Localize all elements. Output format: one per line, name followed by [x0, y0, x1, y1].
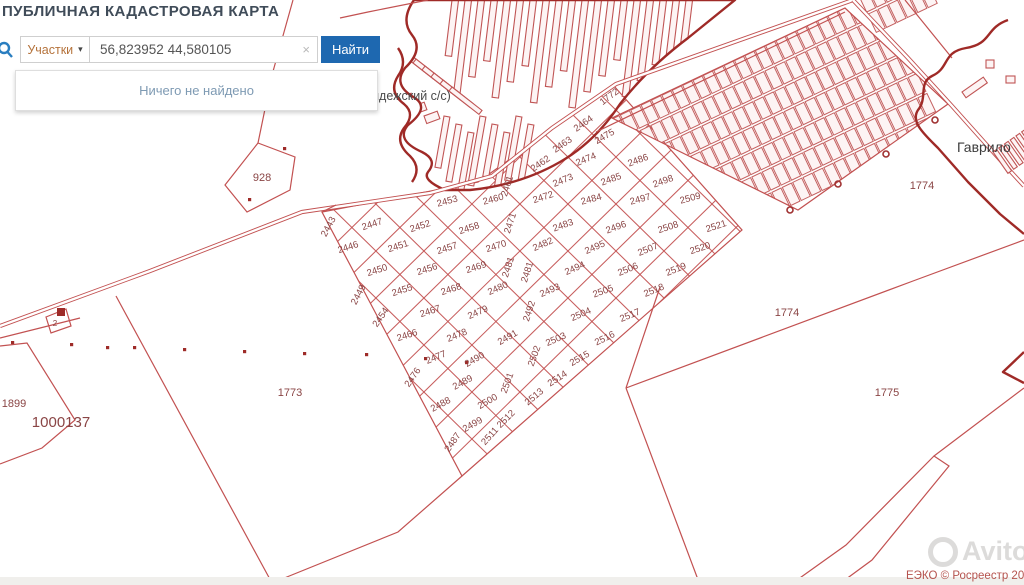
clear-icon[interactable]: ×	[302, 42, 310, 57]
parcel-number-label: 2479	[466, 303, 490, 322]
parcel-number-label: 2507	[636, 241, 660, 259]
building-outline	[986, 60, 994, 68]
parcel-number-label: 2450	[365, 262, 389, 279]
parcel-number-label: 2497	[629, 192, 652, 208]
avito-watermark-text: Avito	[962, 536, 1024, 567]
search-field-wrap: ×	[90, 36, 318, 63]
parcel-number-label: 2468	[439, 281, 463, 298]
field-1773-west-boundary	[116, 296, 272, 583]
parcel-number-label: 2451	[386, 238, 410, 255]
parcel-number-label: 1899	[2, 398, 26, 410]
field-notch-boundary	[790, 456, 949, 585]
chevron-down-icon: ▾	[78, 44, 83, 55]
parcel-number-label: 2460	[482, 192, 505, 208]
parcel-number-label: 928	[253, 172, 271, 184]
parcel-number-label: 2486	[626, 152, 650, 170]
field-1775-west-boundary	[626, 388, 700, 585]
parcel-number-label: 2488	[429, 395, 453, 415]
parcel-number-label: 2452	[408, 218, 432, 235]
building-outline	[1006, 76, 1015, 83]
place-name-label: Гаврило	[957, 139, 1011, 155]
parcel-number-label: 2516	[593, 329, 617, 348]
page-title: ПУБЛИЧНАЯ КАДАСТРОВАЯ КАРТА	[2, 3, 279, 20]
parcel-number-label: 2498	[651, 173, 675, 191]
boundary-line	[905, 0, 952, 58]
field-1774-1775-divider	[626, 240, 1024, 388]
parcel-number-label: 2514	[546, 369, 570, 390]
parcel-number-label: 1000137	[32, 414, 90, 431]
search-results-panel: Ничего не найдено	[15, 70, 378, 111]
parcel-number-label: 2501	[499, 371, 517, 395]
parcel-number-label: 2480	[486, 279, 510, 298]
search-bar: Участки ▾ × Найти	[0, 36, 380, 63]
parcel-number-label: 2494	[563, 259, 587, 278]
edge-parcel-fragment	[1003, 352, 1024, 383]
pkk-app-window: 1772244324472452245824462451245724502456…	[0, 0, 1024, 585]
parcel-number-label: 2470	[484, 238, 508, 255]
parcel-number-label: 2506	[616, 261, 640, 279]
parcel-number-label: 2519	[664, 261, 688, 279]
parcel-number-label: 2	[53, 319, 58, 328]
parcel-number-label: 2474	[574, 151, 598, 169]
parcel-number-label: 2473	[551, 172, 575, 190]
parcel-number-label: 2509	[679, 191, 702, 207]
parcel-number-label: 2489	[451, 373, 475, 393]
search-icon	[0, 39, 14, 63]
parcel-number-label: 2467	[418, 303, 442, 320]
field-1773-south-boundary	[272, 476, 462, 583]
parcel-number-label: 2469	[464, 259, 488, 276]
parcel-number-label: 2478	[445, 327, 469, 345]
parcel-number-label: 2496	[604, 219, 628, 237]
search-category-label: Участки	[27, 43, 73, 57]
parcel-number-label: 2455	[390, 282, 414, 299]
parcel-number-label: 2447	[360, 216, 384, 233]
avito-watermark: Avito	[928, 536, 1024, 567]
parcel-number-label: 2472	[531, 189, 555, 206]
parcel-number-label: 2508	[656, 219, 680, 236]
parcel-number-label: 2457	[435, 240, 459, 257]
parcel-number-label: 1775	[875, 387, 899, 399]
boundary-line	[934, 388, 1024, 456]
parcel-number-label: 2505	[591, 283, 615, 301]
parcel-number-label: 2504	[569, 305, 593, 324]
parcel-number-label: 1773	[278, 387, 302, 399]
no-results-message: Ничего не найдено	[139, 83, 254, 98]
boundary-line	[340, 0, 428, 18]
parcel-number-label: 2492	[521, 299, 538, 323]
parcel-number-label: 2481	[500, 255, 517, 279]
parcel-number-label: 2521	[704, 218, 728, 235]
parcel-number-label: 2483	[551, 217, 575, 235]
parcel-number-label: 2491	[496, 328, 520, 348]
parcel-number-label: 2499	[461, 415, 485, 435]
parcel-number-label: 2485	[599, 171, 623, 189]
parcel-number-label: 2484	[580, 192, 603, 208]
parcel-number-label: 1774	[775, 307, 799, 319]
search-category-dropdown[interactable]: Участки ▾	[20, 36, 90, 63]
boundary-line	[626, 287, 660, 388]
parcel-number-label: 2453	[436, 194, 459, 210]
building-marker	[57, 308, 65, 316]
parcel-number-label: 2503	[544, 330, 568, 349]
parcel-number-label: 2493	[538, 281, 562, 300]
map-attribution: ЕЭКО © Росреестр 20	[906, 570, 1024, 582]
avito-logo-icon	[928, 537, 958, 567]
bottom-band	[0, 577, 1024, 585]
parcel-number-label: 2481	[519, 260, 536, 284]
parcel-number-label: 2458	[457, 220, 481, 237]
building-outline	[962, 77, 987, 98]
parcel-number-label: 2500	[476, 392, 500, 412]
parcel-number-label: 2466	[395, 327, 419, 344]
parcel-number-label: 2456	[415, 261, 439, 278]
parcel-number-label: 2446	[336, 239, 360, 256]
parcel-number-label: 2471	[502, 211, 519, 235]
parcel-number-label: 2443	[319, 215, 339, 239]
parcel-number-label: 2512	[495, 408, 518, 431]
search-input[interactable]	[90, 37, 317, 62]
parcel-number-label: 2477	[424, 349, 448, 367]
parcel-number-label: 1774	[910, 180, 934, 192]
search-button[interactable]: Найти	[321, 36, 380, 63]
parcel-number-label: 2495	[583, 238, 607, 257]
parcel-number-label: 2517	[618, 307, 642, 325]
parcel-number-label: 2482	[531, 235, 555, 254]
parcel-number-label: 2490	[463, 350, 487, 370]
parcel-number-label: 2502	[526, 344, 544, 368]
